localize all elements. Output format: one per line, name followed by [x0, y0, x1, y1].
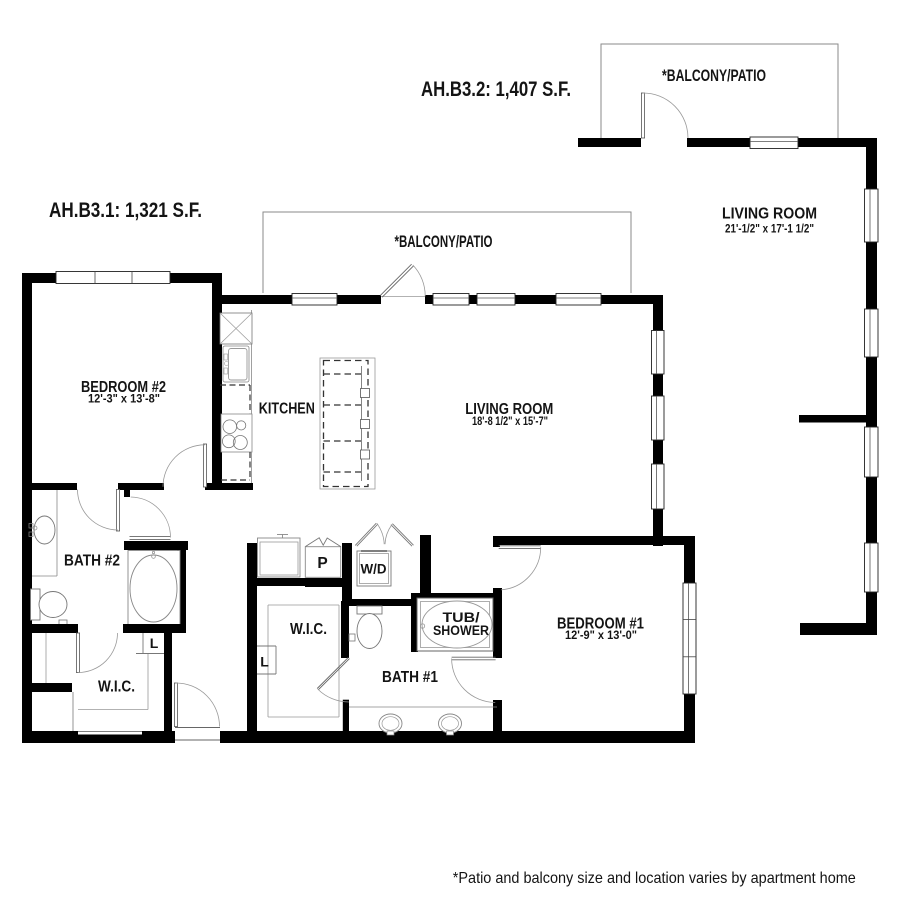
svg-text:W.I.C.: W.I.C.: [290, 621, 327, 638]
svg-text:*BALCONY/PATIO: *BALCONY/PATIO: [395, 233, 493, 251]
svg-text:P: P: [317, 555, 327, 572]
svg-text:W.I.C.: W.I.C.: [98, 679, 135, 696]
svg-text:AH.B3.1: 1,321 S.F.: AH.B3.1: 1,321 S.F.: [49, 198, 202, 222]
svg-text:SHOWER: SHOWER: [433, 623, 489, 638]
svg-text:21'-1/2" x 17'-1 1/2": 21'-1/2" x 17'-1 1/2": [725, 224, 814, 236]
svg-text:18'-8 1/2" x 15'-7": 18'-8 1/2" x 15'-7": [472, 416, 548, 428]
svg-text:KITCHEN: KITCHEN: [259, 401, 315, 418]
svg-text:AH.B3.2: 1,407 S.F.: AH.B3.2: 1,407 S.F.: [421, 77, 571, 101]
svg-text:LIVING ROOM: LIVING ROOM: [722, 206, 817, 223]
svg-text:BATH #1: BATH #1: [382, 669, 438, 686]
svg-text:BATH #2: BATH #2: [64, 553, 120, 570]
svg-text:12'-9" x 13'-0": 12'-9" x 13'-0": [565, 630, 637, 642]
svg-text:L: L: [150, 635, 159, 651]
svg-text:*Patio and balcony size and lo: *Patio and balcony size and location var…: [453, 870, 856, 887]
svg-text:W/D: W/D: [361, 561, 387, 577]
svg-text:12'-3" x 13'-8": 12'-3" x 13'-8": [88, 394, 160, 406]
svg-text:*BALCONY/PATIO: *BALCONY/PATIO: [662, 67, 766, 85]
svg-text:L: L: [260, 654, 269, 670]
